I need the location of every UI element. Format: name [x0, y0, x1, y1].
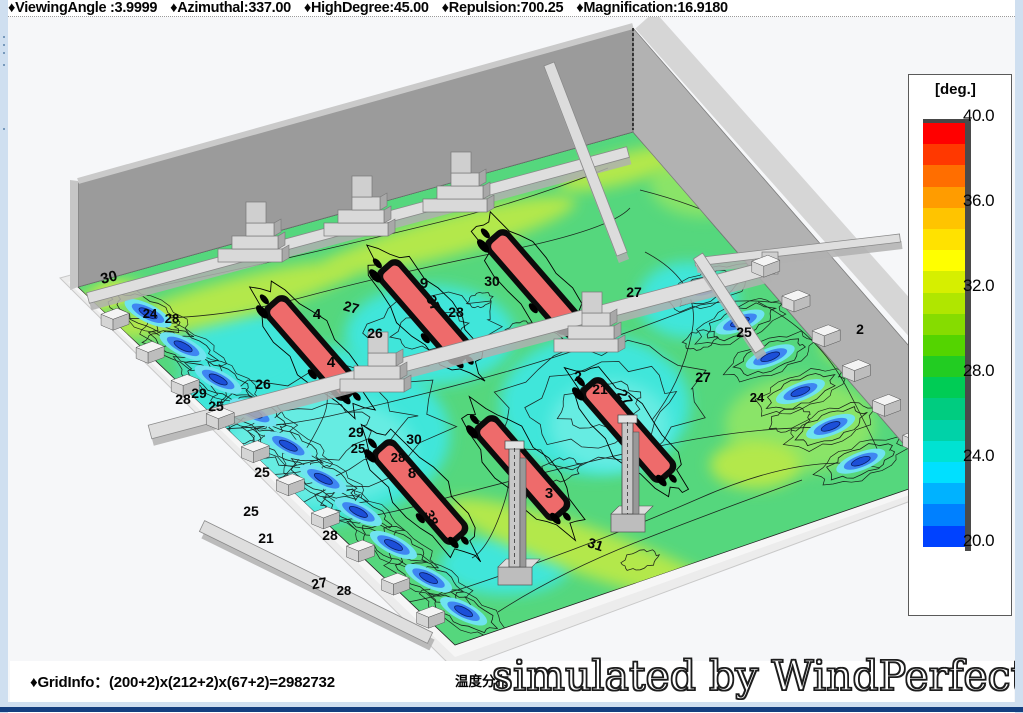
legend-tick: 20.0 — [963, 531, 1009, 549]
contour-label: 28 — [175, 391, 191, 407]
contour-label: 21 — [592, 381, 608, 397]
contour-label: 2 — [856, 321, 864, 337]
contour-label: 30 — [406, 431, 422, 447]
viewport-3d-scene[interactable]: 3024282829252626252521282728427493728302… — [0, 0, 1023, 713]
contour-label: 25 — [736, 324, 752, 340]
contour-label: 2 — [574, 368, 582, 384]
contour-label: 28 — [165, 311, 179, 326]
contour-label: 8 — [408, 465, 416, 482]
contour-label: 30 — [484, 273, 500, 289]
legend-tick: 24.0 — [963, 446, 1009, 464]
legend-tick-labels: 40.036.032.028.024.020.0 — [909, 75, 1011, 615]
window-edge-left — [0, 0, 8, 713]
grid-info-label: ♦GridInfo：(200+2)x(212+2)x(67+2)=2982732 — [30, 671, 335, 692]
contour-label: 4 — [327, 354, 336, 371]
contour-label: 25 — [351, 441, 365, 456]
parameter-readout-4: ♦Magnification:16.9180 — [576, 0, 727, 16]
contour-label: 28 — [391, 450, 405, 465]
parameter-readout-2: ♦HighDegree:45.00 — [304, 0, 429, 16]
contour-label: 25 — [208, 398, 224, 414]
window-border-bottom — [0, 707, 1023, 712]
window-edge-right — [1015, 0, 1023, 713]
legend-tick: 32.0 — [963, 276, 1009, 294]
legend-tick: 28.0 — [963, 361, 1009, 379]
contour-label: 28 — [322, 527, 338, 543]
contour-label: 25 — [254, 464, 270, 480]
temperature-legend: [deg.] 40.036.032.028.024.020.0 — [908, 74, 1012, 616]
parameter-readout-3: ♦Repulsion:700.25 — [442, 0, 564, 16]
application-window: 3024282829252626252521282728427493728302… — [0, 0, 1023, 713]
parameter-readout-1: ♦Azimuthal:337.00 — [170, 0, 291, 16]
contour-label: 28 — [448, 304, 464, 320]
watermark-text: simulated by WindPerfectDX — [492, 652, 1023, 700]
contour-label: 9 — [420, 275, 428, 292]
contour-label: 27 — [310, 574, 328, 592]
contour-label: 26 — [367, 325, 383, 341]
legend-tick: 36.0 — [963, 191, 1009, 209]
contour-label: 25 — [243, 503, 259, 519]
parameter-readout-0: ♦ViewingAngle :3.9999 — [8, 0, 157, 16]
contour-label: 24 — [750, 390, 765, 405]
contour-label: 29 — [348, 424, 364, 440]
contour-label: 24 — [143, 306, 158, 321]
contour-label: 4 — [313, 306, 322, 323]
contour-label: 26 — [255, 376, 271, 392]
back-wall-end-cap — [70, 180, 78, 290]
contour-label: 28 — [337, 583, 351, 598]
contour-label: 21 — [258, 530, 274, 546]
contour-label: 29 — [191, 385, 207, 401]
contour-label: 27 — [695, 369, 711, 385]
contour-label: 27 — [626, 284, 642, 300]
legend-tick: 40.0 — [963, 106, 1009, 124]
parameter-bar: ♦ViewingAngle :3.9999♦Azimuthal:337.00♦H… — [0, 0, 1023, 17]
contour-label: 3 — [545, 485, 553, 502]
